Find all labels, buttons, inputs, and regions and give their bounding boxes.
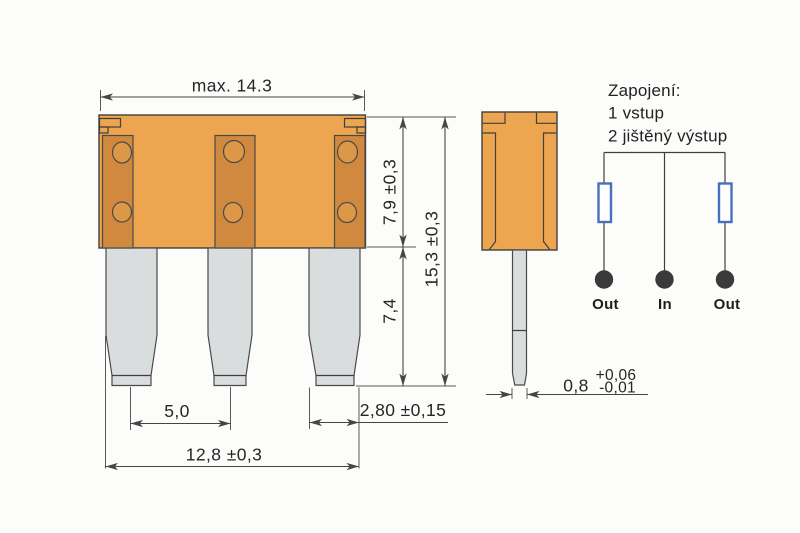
hole bbox=[224, 203, 243, 223]
hole bbox=[224, 141, 245, 163]
schematic-line-output: 2 jištěný výstup bbox=[608, 127, 727, 146]
hole bbox=[338, 203, 357, 223]
dim-total-height: 15,3 ±0,3 bbox=[422, 211, 442, 287]
blade-left bbox=[106, 248, 157, 386]
hole bbox=[113, 202, 132, 222]
blade-right bbox=[309, 248, 360, 386]
side-view: 0,8 +0,06 -0,01 bbox=[482, 112, 648, 399]
schematic-line-input: 1 vstup bbox=[608, 104, 664, 123]
hole bbox=[113, 142, 132, 163]
dim-width-top: max. 14.3 bbox=[192, 76, 272, 96]
label-out-left: Out bbox=[592, 296, 619, 313]
fuse-blades bbox=[106, 248, 360, 386]
label-in: In bbox=[658, 296, 672, 313]
schematic: Zapojení: 1 vstup 2 jištěný výstup Out I… bbox=[592, 81, 740, 313]
drawing-canvas: max. 14.3 7,9 ±0,3 7,4 15,3 ±0,3 5,0 2,8… bbox=[0, 0, 800, 533]
schematic-title: Zapojení: bbox=[608, 81, 681, 100]
blade-side bbox=[513, 250, 527, 385]
front-view bbox=[99, 115, 366, 386]
dim-pin-pitch: 5,0 bbox=[164, 401, 190, 421]
dim-width-bottom: 12,8 ±0,3 bbox=[186, 445, 262, 465]
dim-blade-width: 2,80 ±0,15 bbox=[360, 400, 447, 420]
dim-thickness: 0,8 bbox=[563, 376, 589, 396]
node-out-right bbox=[716, 270, 734, 288]
dim-body-height: 7,9 ±0,3 bbox=[380, 159, 400, 225]
label-out-right: Out bbox=[714, 296, 741, 313]
node-out-left bbox=[595, 270, 613, 288]
dim-thickness-tol-minus: -0,01 bbox=[599, 380, 636, 397]
fuse-symbol-left bbox=[599, 184, 612, 223]
blade-middle bbox=[208, 248, 252, 386]
fuse-datasheet-drawing: max. 14.3 7,9 ±0,3 7,4 15,3 ±0,3 5,0 2,8… bbox=[0, 0, 800, 533]
dim-blade-length: 7,4 bbox=[380, 298, 400, 324]
node-in bbox=[655, 270, 673, 288]
fuse-symbol-right bbox=[719, 184, 732, 223]
dimension-thickness: 0,8 +0,06 -0,01 bbox=[486, 367, 648, 399]
hole bbox=[338, 141, 358, 163]
terminal-nodes bbox=[595, 270, 734, 288]
